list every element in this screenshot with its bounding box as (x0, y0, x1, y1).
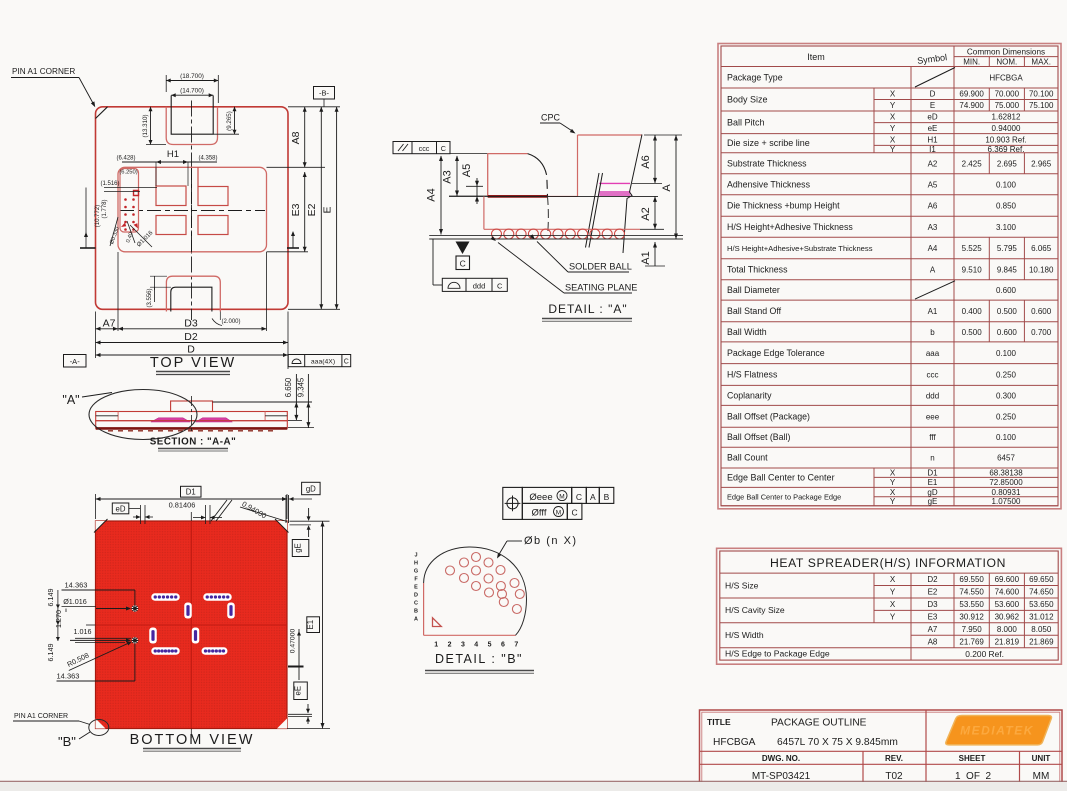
svg-text:D1: D1 (927, 469, 938, 478)
svg-text:21.869: 21.869 (1029, 637, 1054, 646)
svg-text:X: X (890, 90, 896, 99)
svg-text:0.600: 0.600 (997, 328, 1018, 337)
svg-text:X: X (890, 575, 896, 584)
svg-text:30.962: 30.962 (995, 612, 1020, 621)
svg-text:14.363: 14.363 (57, 672, 80, 681)
svg-text:31.012: 31.012 (1029, 612, 1054, 621)
svg-text:0.500: 0.500 (997, 307, 1018, 316)
svg-text:D3: D3 (927, 600, 938, 609)
svg-text:eE: eE (928, 124, 938, 133)
svg-text:21.769: 21.769 (959, 637, 984, 646)
svg-text:B: B (414, 609, 418, 615)
svg-text:"B": "B" (58, 734, 76, 749)
svg-text:Y: Y (890, 101, 896, 110)
svg-text:J: J (414, 553, 417, 559)
svg-text:9.345: 9.345 (296, 377, 305, 397)
svg-text:D3: D3 (184, 318, 198, 330)
svg-text:70.100: 70.100 (1029, 90, 1054, 99)
svg-text:eE: eE (294, 686, 303, 696)
svg-text:A4: A4 (928, 244, 938, 253)
svg-text:Adhensive Thickness: Adhensive Thickness (727, 179, 811, 189)
svg-text:5: 5 (488, 642, 492, 649)
svg-text:BOTTOM VIEW: BOTTOM VIEW (130, 732, 255, 748)
svg-text:C: C (441, 144, 446, 153)
svg-text:C: C (497, 281, 503, 290)
svg-text:A5: A5 (461, 164, 473, 177)
svg-text:H/S Height+Adhesive+Substrate: H/S Height+Adhesive+Substrate Thickness (727, 244, 873, 253)
svg-text:0.47000: 0.47000 (290, 629, 297, 654)
svg-text:69.600: 69.600 (995, 575, 1020, 584)
svg-text:-A-: -A- (70, 357, 81, 366)
svg-text:5.795: 5.795 (997, 244, 1018, 253)
svg-text:X: X (890, 469, 896, 478)
svg-text:D: D (187, 344, 195, 356)
svg-text:H1: H1 (167, 149, 179, 160)
svg-text:(1.516): (1.516) (100, 181, 119, 187)
svg-text:69.550: 69.550 (959, 575, 984, 584)
svg-text:A: A (930, 265, 936, 274)
svg-text:A1: A1 (640, 251, 652, 264)
svg-text:aaa: aaa (926, 349, 940, 358)
svg-text:6457: 6457 (997, 454, 1015, 463)
svg-text:Ball Width: Ball Width (727, 327, 767, 337)
svg-text:A5: A5 (928, 180, 938, 189)
svg-text:1: 1 (434, 642, 438, 649)
svg-text:(2.000): (2.000) (221, 319, 240, 325)
svg-text:53.600: 53.600 (995, 600, 1020, 609)
svg-text:30.912: 30.912 (959, 612, 984, 621)
svg-text:C: C (572, 508, 578, 518)
svg-text:E2: E2 (928, 588, 938, 597)
svg-text:UNIT: UNIT (1032, 754, 1051, 763)
svg-text:A4: A4 (426, 188, 438, 201)
svg-text:7: 7 (514, 642, 518, 649)
svg-text:Øb (n X): Øb (n X) (524, 535, 578, 547)
svg-text:75.100: 75.100 (1029, 101, 1054, 110)
svg-text:Øfff: Øfff (532, 508, 547, 519)
svg-text:gD: gD (306, 485, 316, 494)
svg-text:DETAIL : "B": DETAIL : "B" (435, 652, 523, 666)
svg-text:(14.700): (14.700) (180, 88, 204, 95)
svg-text:I1: I1 (929, 145, 936, 154)
svg-text:DETAIL : "A": DETAIL : "A" (548, 302, 627, 316)
svg-text:A7: A7 (928, 625, 938, 634)
svg-text:0.850: 0.850 (996, 202, 1017, 211)
svg-text:Ball Diameter: Ball Diameter (727, 285, 780, 295)
svg-text:6.650: 6.650 (284, 377, 293, 397)
svg-text:Y: Y (890, 588, 896, 597)
svg-text:A6: A6 (640, 155, 652, 168)
svg-text:DWG. NO.: DWG. NO. (762, 754, 800, 763)
svg-text:2.425: 2.425 (962, 159, 983, 168)
svg-text:HFCBGA: HFCBGA (989, 73, 1023, 82)
svg-text:D2: D2 (184, 331, 198, 343)
svg-text:(6.250): (6.250) (119, 170, 137, 176)
svg-text:3.100: 3.100 (996, 223, 1017, 232)
svg-text:0.600: 0.600 (996, 286, 1017, 295)
svg-text:0.81406: 0.81406 (169, 501, 196, 510)
svg-text:gE: gE (928, 497, 938, 506)
svg-text:Package Type: Package Type (727, 72, 783, 82)
svg-text:6.149: 6.149 (46, 644, 55, 662)
svg-text:2.695: 2.695 (997, 159, 1018, 168)
svg-text:6.369 Ref.: 6.369 Ref. (988, 145, 1025, 154)
svg-text:T02: T02 (885, 771, 903, 782)
svg-text:PIN A1 CORNER: PIN A1 CORNER (14, 713, 68, 720)
svg-text:TOP VIEW: TOP VIEW (150, 355, 236, 371)
svg-text:A2: A2 (928, 159, 938, 168)
svg-text:D: D (414, 593, 418, 599)
svg-text:69.900: 69.900 (959, 90, 984, 99)
svg-text:eee: eee (926, 412, 940, 421)
svg-text:MAX.: MAX. (1031, 58, 1051, 67)
svg-text:Common Dimensions: Common Dimensions (967, 47, 1045, 56)
svg-text:E2: E2 (306, 203, 318, 216)
svg-text:74.900: 74.900 (959, 101, 984, 110)
svg-text:M: M (556, 510, 561, 517)
svg-text:CPC: CPC (541, 113, 561, 123)
svg-text:SEATING PLANE: SEATING PLANE (565, 283, 637, 293)
svg-text:Edge Ball Center to Center: Edge Ball Center to Center (727, 473, 835, 483)
svg-text:H/S Size: H/S Size (725, 580, 759, 590)
svg-text:10.180: 10.180 (1029, 265, 1054, 274)
svg-text:b: b (930, 328, 935, 337)
svg-text:Y: Y (890, 145, 896, 154)
svg-text:74.650: 74.650 (1029, 588, 1054, 597)
svg-text:0.200 Ref.: 0.200 Ref. (965, 649, 1004, 659)
svg-text:Die Thickness +bump Height: Die Thickness +bump Height (727, 201, 840, 211)
svg-text:0.100: 0.100 (996, 180, 1017, 189)
svg-text:E: E (930, 101, 935, 110)
svg-text:0.100: 0.100 (996, 433, 1017, 442)
svg-text:0.600: 0.600 (1031, 307, 1052, 316)
svg-text:C: C (414, 601, 418, 607)
svg-text:M: M (559, 494, 564, 501)
svg-text:X: X (890, 135, 896, 144)
svg-text:Substrate Thickness: Substrate Thickness (727, 158, 807, 168)
svg-text:PIN A1 CORNER: PIN A1 CORNER (12, 67, 75, 76)
svg-text:gD: gD (927, 488, 937, 497)
svg-text:A3: A3 (442, 170, 454, 183)
svg-text:A8: A8 (290, 131, 302, 144)
svg-text:D: D (930, 90, 936, 99)
svg-text:(10.772): (10.772) (95, 205, 101, 227)
svg-text:0.400: 0.400 (962, 307, 983, 316)
svg-text:2.965: 2.965 (1031, 159, 1052, 168)
svg-text:gE: gE (294, 543, 303, 553)
svg-text:70.000: 70.000 (995, 90, 1020, 99)
svg-text:0.80931: 0.80931 (992, 488, 1021, 497)
svg-text:MT-SP03421: MT-SP03421 (752, 771, 811, 782)
svg-text:Øeee: Øeee (529, 492, 552, 503)
svg-text:Edge Ball Center to Package Ed: Edge Ball Center to Package Edge (727, 493, 841, 502)
svg-text:1.62812: 1.62812 (992, 113, 1021, 122)
svg-text:X: X (890, 600, 896, 609)
svg-text:9.845: 9.845 (997, 265, 1018, 274)
svg-text:75.000: 75.000 (995, 101, 1020, 110)
svg-text:14.363: 14.363 (65, 581, 88, 590)
svg-text:2: 2 (448, 642, 452, 649)
svg-text:X: X (890, 113, 896, 122)
svg-text:A8: A8 (928, 637, 938, 646)
svg-text:HFCBGA: HFCBGA (713, 737, 756, 748)
svg-text:Y: Y (890, 478, 896, 487)
svg-text:C: C (460, 258, 466, 268)
svg-text:Y: Y (890, 497, 896, 506)
svg-text:8.000: 8.000 (997, 625, 1018, 634)
svg-text:1.016: 1.016 (74, 627, 92, 636)
svg-text:Package Edge Tolerance: Package Edge Tolerance (727, 348, 825, 358)
svg-text:ccc: ccc (927, 371, 939, 380)
svg-text:Ball Stand Off: Ball Stand Off (727, 306, 782, 316)
svg-text:H/S Cavity Size: H/S Cavity Size (725, 605, 785, 615)
svg-text:(4.358): (4.358) (198, 156, 217, 162)
svg-text:E3: E3 (290, 203, 302, 216)
svg-text:(13.310): (13.310) (142, 114, 149, 137)
svg-text:4: 4 (474, 642, 478, 649)
svg-text:Ball Offset (Package): Ball Offset (Package) (727, 411, 810, 421)
svg-text:H: H (414, 561, 418, 567)
svg-text:D1: D1 (186, 488, 196, 497)
svg-text:A: A (590, 492, 596, 502)
svg-text:A1: A1 (928, 307, 938, 316)
svg-text:53.650: 53.650 (1029, 600, 1054, 609)
svg-text:-B-: -B- (319, 89, 330, 98)
svg-text:21.819: 21.819 (995, 637, 1020, 646)
svg-text:PACKAGE OUTLINE: PACKAGE OUTLINE (771, 718, 867, 729)
svg-text:9.510: 9.510 (962, 265, 983, 274)
svg-text:ccc: ccc (419, 144, 430, 153)
svg-text:A: A (414, 617, 418, 623)
svg-text:H/S Height+Adhesive Thickness: H/S Height+Adhesive Thickness (727, 222, 853, 232)
svg-text:n: n (930, 454, 934, 463)
svg-text:eD: eD (927, 113, 937, 122)
svg-text:Item: Item (807, 52, 825, 62)
svg-text:0.94000: 0.94000 (992, 124, 1021, 133)
svg-text:8.050: 8.050 (1031, 625, 1052, 634)
svg-text:5.525: 5.525 (962, 244, 983, 253)
svg-text:NOM.: NOM. (996, 58, 1017, 67)
svg-text:(3.556): (3.556) (147, 288, 153, 307)
svg-text:ddd: ddd (926, 391, 939, 400)
svg-text:H/S Width: H/S Width (725, 630, 764, 640)
svg-text:0.500: 0.500 (962, 328, 983, 337)
svg-text:0.300: 0.300 (996, 391, 1017, 400)
svg-text:SECTION : "A-A": SECTION : "A-A" (150, 437, 236, 448)
svg-text:(1.778): (1.778) (102, 199, 108, 218)
svg-text:C: C (344, 359, 349, 366)
svg-text:(6.428): (6.428) (116, 156, 135, 162)
svg-text:MM: MM (1033, 771, 1050, 782)
svg-text:fff: fff (929, 433, 936, 442)
svg-text:0.100: 0.100 (996, 349, 1017, 358)
svg-text:0.250: 0.250 (996, 412, 1017, 421)
svg-text:1.07500: 1.07500 (992, 497, 1021, 506)
svg-text:HEAT SPREADER(H/S) INFORMATI: HEAT SPREADER(H/S) INFORMATION (770, 556, 1006, 570)
svg-text:E3: E3 (928, 612, 938, 621)
svg-text:53.550: 53.550 (959, 600, 984, 609)
svg-text:69.650: 69.650 (1029, 575, 1054, 584)
svg-text:0.700: 0.700 (1031, 328, 1052, 337)
svg-text:E: E (414, 585, 418, 591)
svg-text:C: C (576, 492, 582, 502)
svg-text:Body Size: Body Size (727, 95, 768, 105)
svg-text:Total Thickness: Total Thickness (727, 264, 788, 274)
svg-text:MIN.: MIN. (963, 58, 980, 67)
svg-text:Ball Pitch: Ball Pitch (727, 117, 765, 127)
svg-text:E1: E1 (306, 620, 315, 630)
svg-text:Ball Offset (Ball): Ball Offset (Ball) (727, 432, 790, 442)
svg-text:6.149: 6.149 (46, 589, 55, 607)
svg-text:(9.265): (9.265) (226, 111, 233, 131)
svg-text:G: G (414, 569, 418, 575)
svg-text:MEDIATEK: MEDIATEK (960, 724, 1034, 738)
svg-text:74.600: 74.600 (995, 588, 1020, 597)
svg-text:E1: E1 (928, 478, 938, 487)
svg-text:H1: H1 (927, 135, 938, 144)
svg-text:0.250: 0.250 (996, 371, 1017, 380)
svg-text:6: 6 (501, 642, 505, 649)
svg-text:6457L 70 X 75 X 9.845mm: 6457L 70 X 75 X 9.845mm (777, 737, 898, 748)
svg-text:1 OF 2: 1 OF 2 (955, 771, 992, 782)
svg-text:72.85000: 72.85000 (989, 478, 1023, 487)
svg-text:3: 3 (461, 642, 465, 649)
svg-text:H/S Edge to Package Edge: H/S Edge to Package Edge (725, 649, 830, 659)
svg-text:D2: D2 (927, 575, 938, 584)
svg-text:H/S Flatness: H/S Flatness (727, 370, 778, 380)
svg-text:Y: Y (890, 124, 896, 133)
svg-text:B: B (604, 492, 610, 502)
svg-text:A2: A2 (640, 207, 652, 220)
svg-text:eD: eD (116, 504, 126, 513)
svg-text:X: X (890, 488, 896, 497)
svg-text:74.550: 74.550 (959, 588, 984, 597)
svg-text:A6: A6 (928, 202, 938, 211)
svg-text:Coplanarity: Coplanarity (727, 390, 772, 400)
svg-text:ddd: ddd (473, 281, 486, 290)
svg-text:7.950: 7.950 (962, 625, 983, 634)
svg-text:"A": "A" (62, 393, 79, 407)
svg-text:68.38138: 68.38138 (989, 469, 1023, 478)
svg-text:(18.700): (18.700) (180, 73, 204, 80)
svg-text:10.903 Ref.: 10.903 Ref. (985, 135, 1026, 144)
svg-text:1.270: 1.270 (54, 610, 63, 628)
svg-text:E: E (322, 206, 334, 213)
svg-text:REV.: REV. (885, 754, 903, 763)
svg-text:SHEET: SHEET (959, 754, 986, 763)
svg-text:Ball Count: Ball Count (727, 453, 768, 463)
svg-text:aaa(4X): aaa(4X) (311, 359, 335, 366)
svg-text:6.065: 6.065 (1031, 244, 1052, 253)
svg-text:TITLE: TITLE (707, 717, 731, 727)
svg-text:SOLDER BALL: SOLDER BALL (569, 262, 632, 272)
svg-text:Die size + scribe line: Die size + scribe line (727, 138, 810, 148)
svg-text:A: A (661, 184, 673, 192)
svg-text:Ø1.016: Ø1.016 (63, 597, 87, 606)
svg-text:Y: Y (890, 612, 896, 621)
svg-text:A3: A3 (928, 223, 938, 232)
